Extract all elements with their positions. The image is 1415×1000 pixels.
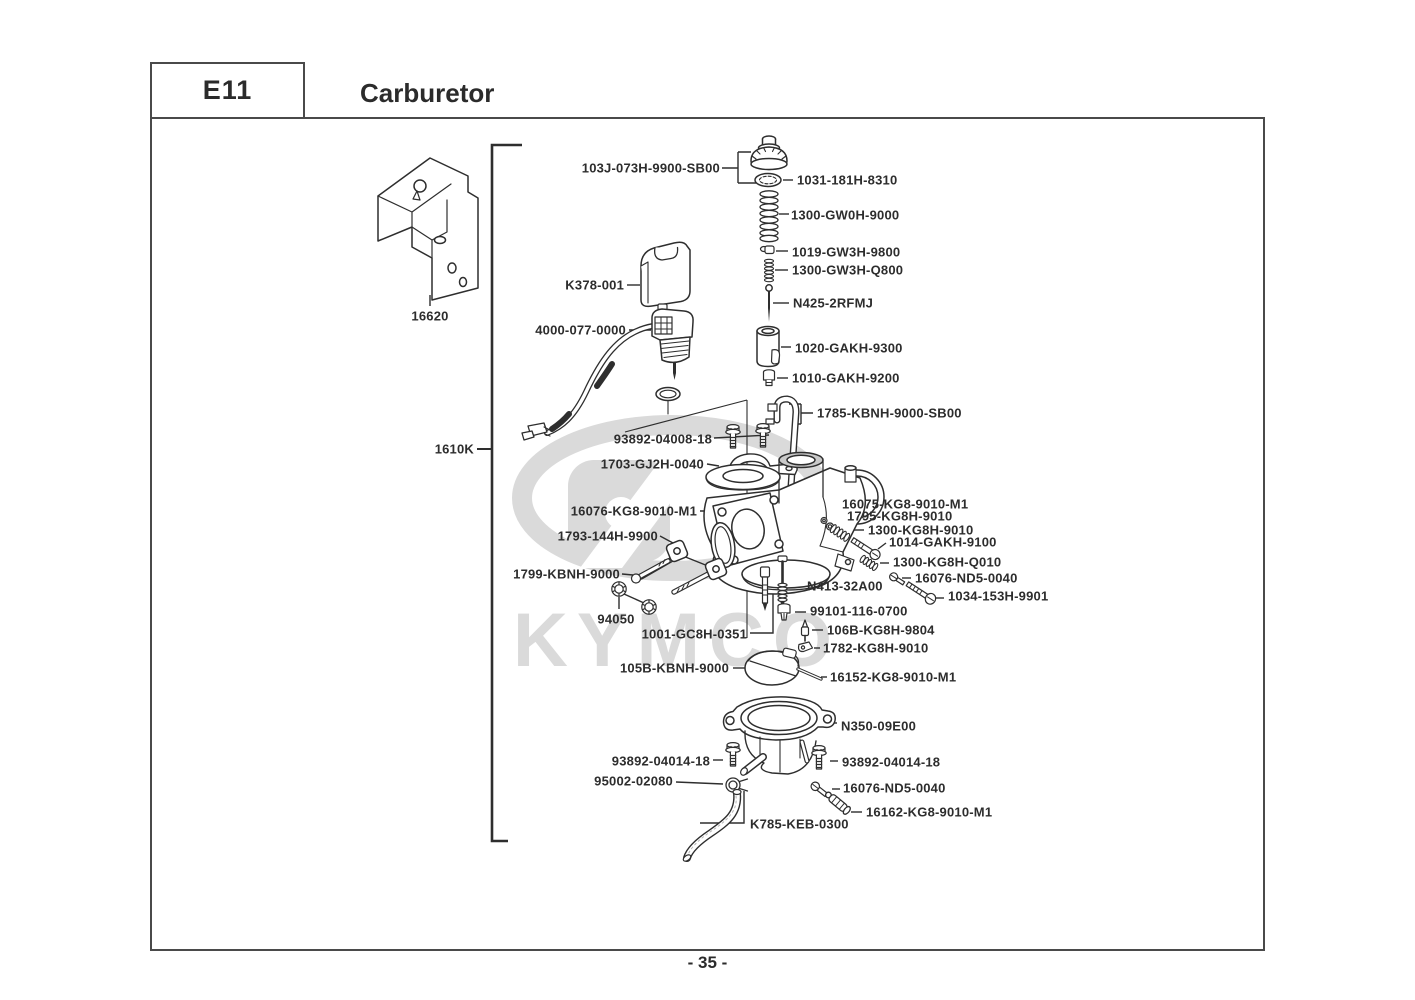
part-label: 99101-116-0700	[810, 604, 908, 619]
part-label: 1010-GAKH-9200	[792, 371, 900, 386]
part-label: K378-001	[565, 278, 624, 293]
part-label: 1034-153H-9901	[948, 589, 1048, 604]
part-label: 95002-02080	[594, 774, 673, 789]
part-label: 1001-GC8H-0351	[642, 627, 747, 642]
part-label: 1014-GAKH-9100	[889, 535, 997, 550]
part-label: 1020-GAKH-9300	[795, 341, 903, 356]
part-label: 103J-073H-9900-SB00	[582, 161, 720, 176]
part-label: 93892-04014-18	[612, 754, 710, 769]
part-label: 105B-KBNH-9000	[620, 661, 729, 676]
part-label: K785-KEB-0300	[750, 817, 849, 832]
parts-catalog-page: E11 Carburetor	[0, 0, 1415, 1000]
part-label: 1300-GW3H-Q800	[792, 263, 903, 278]
part-label: 1799-KBNH-9000	[513, 567, 620, 582]
part-label: 94050	[597, 612, 634, 627]
part-label: 93892-04014-18	[842, 755, 940, 770]
part-label: 16152-KG8-9010-M1	[830, 670, 956, 685]
part-label: 1300-KG8H-Q010	[893, 555, 1001, 570]
part-label: 1703-GJ2H-0040	[601, 457, 704, 472]
part-label: 106B-KG8H-9804	[827, 623, 935, 638]
part-label: 1019-GW3H-9800	[792, 245, 900, 260]
part-label: N350-09E00	[841, 719, 916, 734]
part-label: N413-32A00	[807, 579, 883, 594]
part-labels-layer: 103J-073H-9900-SB001031-181H-83101300-GW…	[0, 0, 1415, 1000]
part-label: 1300-GW0H-9000	[791, 208, 899, 223]
part-label: N425-2RFMJ	[793, 296, 873, 311]
part-label: 4000-077-0000	[535, 323, 626, 338]
part-label: 1610K	[435, 442, 474, 457]
part-label: 1782-KG8H-9010	[823, 641, 928, 656]
part-label: 16076-ND5-0040	[843, 781, 946, 796]
part-label: 1793-144H-9900	[558, 529, 658, 544]
part-label: 93892-04008-18	[614, 432, 712, 447]
part-label: 16076-KG8-9010-M1	[571, 504, 697, 519]
part-label: 16162-KG8-9010-M1	[866, 805, 992, 820]
part-label: 1031-181H-8310	[797, 173, 897, 188]
part-label: 1795-KG8H-9010	[847, 509, 952, 524]
part-label: 16620	[411, 309, 448, 324]
part-label: 1785-KBNH-9000-SB00	[817, 406, 962, 421]
part-label: 16076-ND5-0040	[915, 571, 1018, 586]
